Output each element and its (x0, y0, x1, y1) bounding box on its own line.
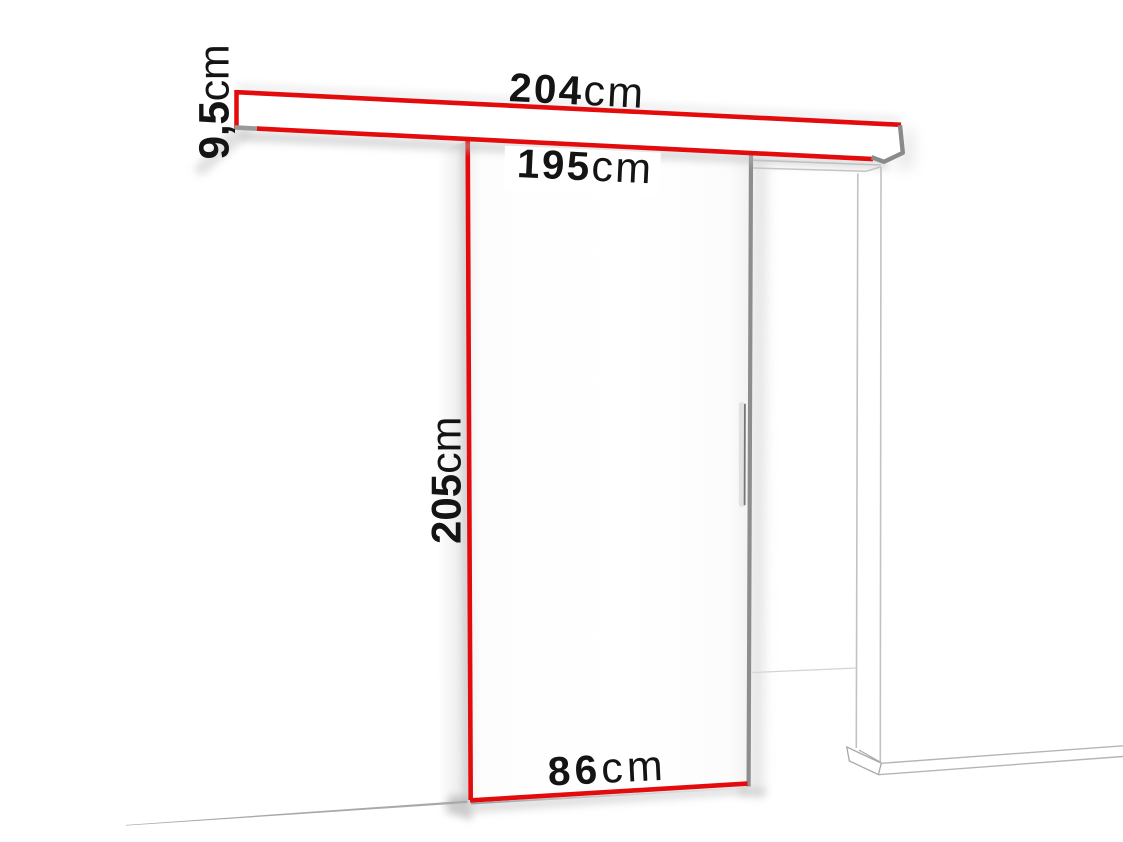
svg-text:204cm: 204cm (508, 63, 647, 118)
svg-text:195cm: 195cm (516, 139, 655, 193)
svg-text:9,5cm: 9,5cm (191, 45, 239, 160)
svg-text:86cm: 86cm (547, 742, 668, 796)
svg-text:205cm: 205cm (422, 417, 470, 544)
